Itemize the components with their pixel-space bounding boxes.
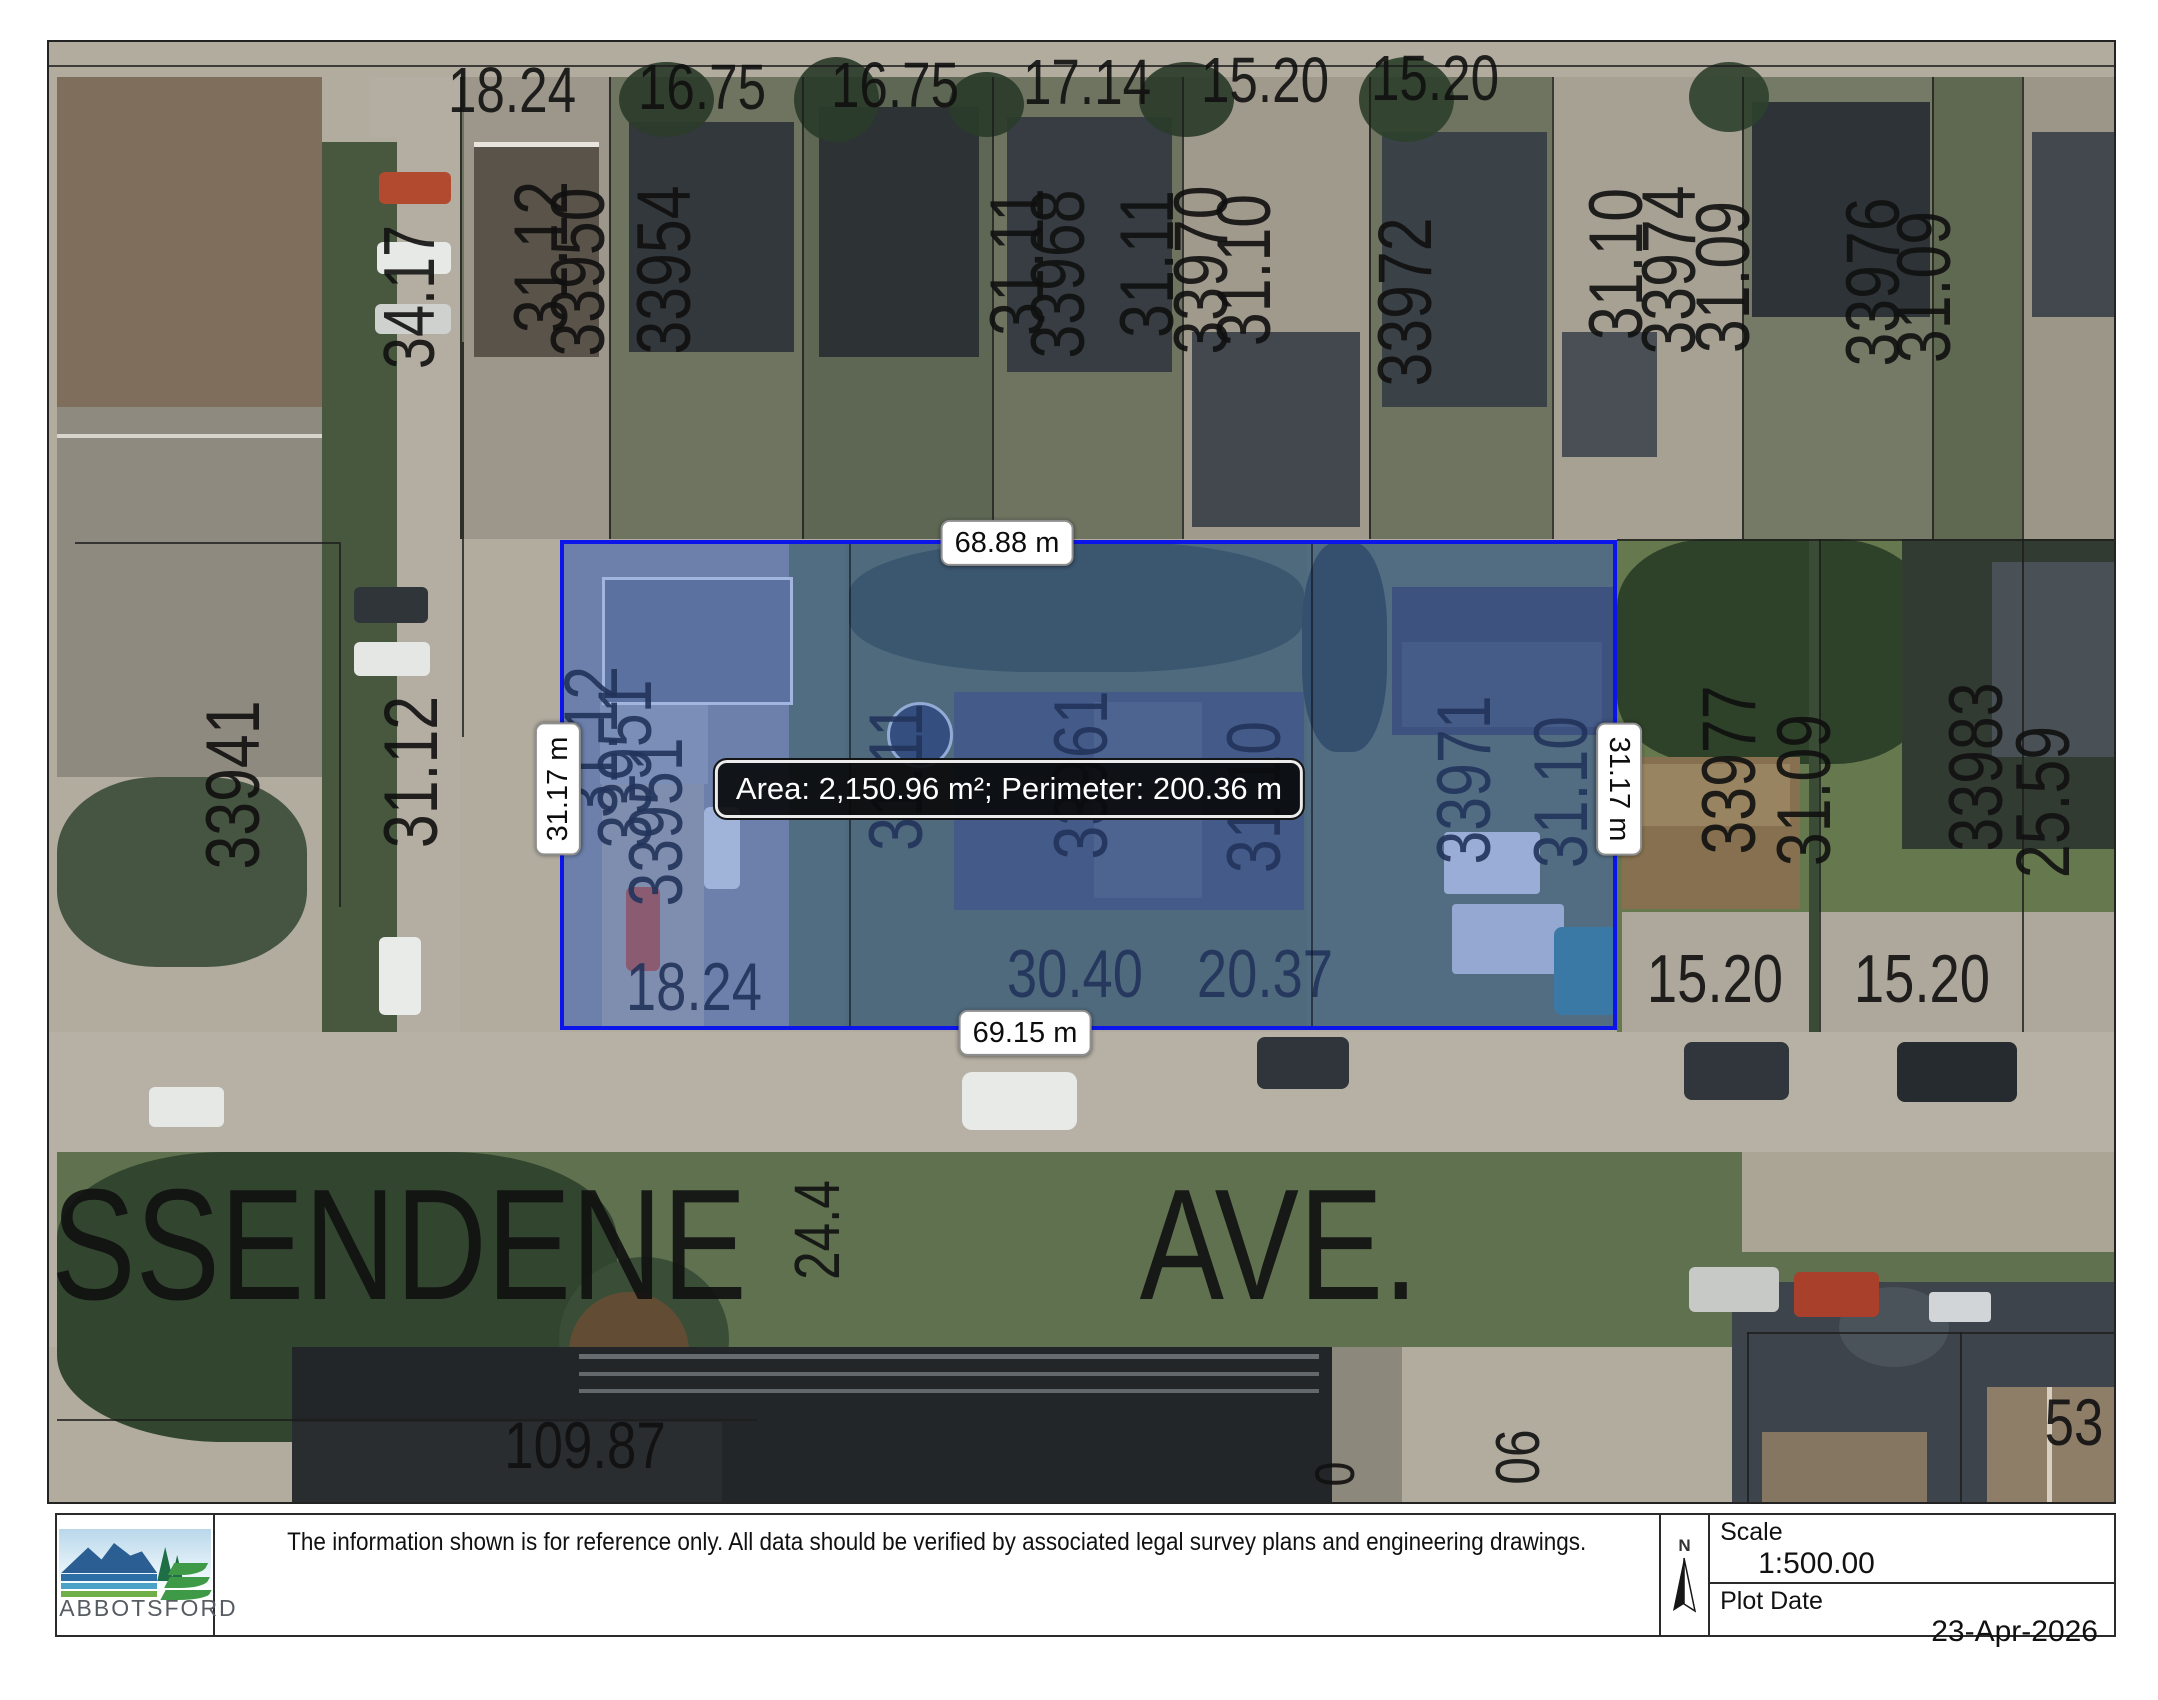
aerial-feature [1257, 1037, 1349, 1089]
map-label: 18.24 [448, 58, 576, 122]
scale-row: Scale 1:500.00 [1710, 1515, 2114, 1584]
parcel-boundary-line [802, 77, 804, 539]
map-label: 31.09 [1767, 714, 1843, 866]
aerial-feature [474, 142, 599, 147]
parcel-boundary-line [462, 342, 464, 737]
area-perimeter-tooltip: Area: 2,150.96 m²; Perimeter: 200.36 m [715, 760, 1303, 818]
parcel-boundary-line [75, 542, 339, 544]
north-arrow-cell: N [1661, 1515, 1710, 1635]
aerial-feature [1684, 1042, 1789, 1100]
aerial-feature [57, 434, 322, 438]
measurement-label-right: 31.17 m [1596, 723, 1642, 856]
aerial-feature [379, 937, 421, 1015]
map-label: 15.20 [1647, 945, 1783, 1013]
aerial-feature [149, 1087, 224, 1127]
parcel-boundary-line [339, 542, 341, 907]
map-label: 24.4 [785, 1180, 849, 1280]
map-label: 34.17 [374, 225, 446, 369]
map-label: 15.20 [1201, 48, 1329, 112]
parcel-divider [1311, 544, 1313, 1026]
abbotsford-logo: ABBOTSFORD [59, 1529, 211, 1621]
logo-stripe [61, 1574, 157, 1581]
aerial-feature [1762, 1432, 1927, 1504]
parcel-boundary-line [1552, 77, 1554, 539]
plot-date-row: Plot Date 23-Apr-2026 [1710, 1584, 2114, 1651]
measurement-label-left: 31.17 m [535, 723, 581, 856]
parcel-boundary-line [2022, 77, 2024, 539]
map-label: 53 [2045, 1389, 2104, 1455]
map-label: 16.75 [831, 53, 959, 117]
map-label: 33950 [541, 187, 617, 356]
aerial-feature [1742, 1152, 2116, 1252]
map-label: 0 [1307, 1462, 1363, 1487]
plot-date-value: 23-Apr-2026 [1720, 1615, 2104, 1648]
map-label: 31.09 [1887, 211, 1963, 363]
map-label: 15.20 [1854, 945, 1990, 1013]
map-label: 31.09 [1686, 201, 1762, 353]
scale-label: Scale [1720, 1519, 2104, 1547]
map-label: 31.10 [1207, 194, 1283, 346]
map-label: 33977 [1692, 685, 1768, 854]
logo-cell: ABBOTSFORD [57, 1515, 215, 1635]
map-label: 33968 [1021, 189, 1097, 358]
map-label: 33941 [196, 700, 272, 869]
aerial-feature [579, 1354, 1319, 1359]
map-label: 06 [1488, 1429, 1550, 1484]
map-label: 16.75 [638, 55, 766, 119]
map-label: SSENDENE [51, 1166, 746, 1324]
scale-plotdate-cell: Scale 1:500.00 Plot Date 23-Apr-2026 [1710, 1515, 2114, 1635]
map-label: 17.14 [1023, 50, 1151, 114]
map-label: 15.20 [1371, 46, 1499, 110]
map-label: 33954 [627, 185, 703, 354]
aerial-feature [57, 77, 322, 407]
aerial-feature [819, 107, 979, 357]
map-label: 33972 [1368, 217, 1444, 386]
title-block: ABBOTSFORD The information shown is for … [55, 1513, 2116, 1637]
logo-wordmark: ABBOTSFORD [59, 1595, 211, 1622]
aerial-feature [354, 587, 428, 623]
measurement-label-top: 68.88 m [941, 520, 1074, 566]
aerial-feature [1897, 1042, 2017, 1102]
plot-date-label: Plot Date [1720, 1588, 2104, 1616]
aerial-feature [949, 72, 1024, 137]
map-label: 109.87 [504, 1412, 666, 1478]
map-viewport[interactable]: 18.2416.7516.7517.1415.2015.2031.1233950… [47, 40, 2116, 1504]
aerial-feature [379, 172, 451, 204]
north-arrow-icon [1671, 1556, 1697, 1614]
aerial-feature [962, 1072, 1077, 1130]
parcel-boundary-line [1747, 1332, 2116, 1334]
aerial-feature [1929, 1292, 1991, 1322]
disclaimer-text: The information shown is for reference o… [288, 1528, 1587, 1557]
parcel-boundary-line [1960, 1332, 1962, 1504]
aerial-feature [579, 1372, 1319, 1376]
aerial-feature [354, 642, 430, 676]
plot-page: 18.2416.7516.7517.1415.2015.2031.1233950… [0, 0, 2158, 1700]
aerial-feature [369, 77, 460, 137]
aerial-feature [1192, 332, 1360, 527]
map-label: AVE. [1140, 1166, 1419, 1324]
disclaimer-cell: The information shown is for reference o… [215, 1515, 1660, 1635]
north-label: N [1678, 1537, 1690, 1554]
aerial-feature [1794, 1272, 1879, 1317]
aerial-feature [1689, 1267, 1779, 1312]
map-label: 25.59 [2006, 726, 2082, 878]
scale-value: 1:500.00 [1758, 1547, 2104, 1580]
parcel-boundary-line [1617, 539, 2116, 541]
aerial-feature [579, 1389, 1319, 1393]
aerial-feature [2032, 132, 2116, 317]
parcel-boundary-line [1747, 1332, 1749, 1504]
map-label: 31.12 [374, 696, 450, 848]
measurement-label-bottom: 69.15 m [959, 1010, 1092, 1056]
aerial-feature [1689, 62, 1769, 132]
logo-stripe [61, 1583, 157, 1589]
